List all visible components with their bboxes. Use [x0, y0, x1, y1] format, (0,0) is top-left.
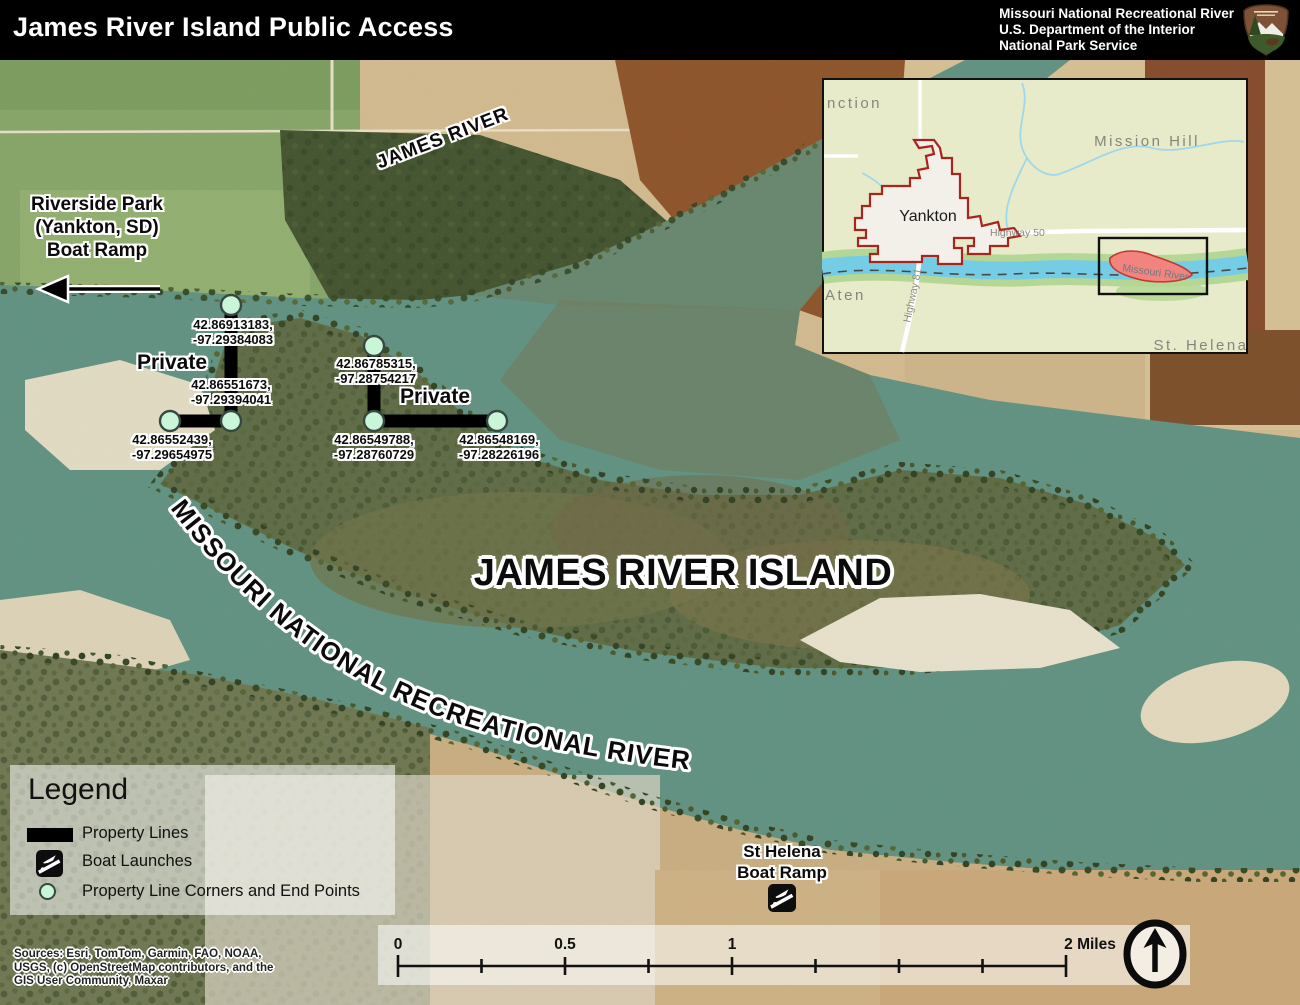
coordinate-label: 42.86552439, -97.29654975 [132, 433, 212, 463]
coordinate-label: 42.86549788, -97.28760729 [334, 433, 414, 463]
scale-label-05: 0.5 [554, 936, 576, 953]
scale-bar: 0 0.5 1 2 Miles [378, 925, 1190, 985]
inset-locator-map: nction Mission Hill Yankton Highway 50 H… [822, 78, 1248, 354]
riverside-park-line2: (Yankton, SD) [31, 216, 163, 239]
page-title: James River Island Public Access [13, 12, 454, 43]
inset-yankton-label: Yankton [899, 208, 957, 225]
riverside-park-label: Riverside Park (Yankton, SD) Boat Ramp [31, 193, 163, 263]
legend-item-boat-launches: Boat Launches [10, 849, 395, 877]
coordinate-label: 42.86785315, -97.28754217 [336, 357, 416, 387]
property-line-swatch [27, 828, 73, 842]
header-bar: James River Island Public Access Missour… [0, 0, 1300, 60]
boat-launch-icon [36, 850, 63, 877]
inset-aten-label: Aten [825, 287, 866, 304]
coordinate-label: 42.86548169, -97.28226196 [459, 433, 539, 463]
private-label-east: Private [400, 385, 470, 409]
inset-junction-label: nction [827, 95, 882, 112]
inset-highway50-label: Highway 50 [990, 227, 1045, 239]
inset-st-helena-label: St. Helena [1153, 337, 1248, 354]
agency-line-dept: U.S. Department of the Interior [999, 22, 1234, 38]
scale-label-1: 1 [728, 936, 737, 953]
map-document: MISSOURI NATIONAL RECREATIONAL RIVER Jam… [0, 0, 1300, 1005]
island-title-label: JAMES RIVER ISLAND [474, 552, 893, 595]
riverside-park-line1: Riverside Park [31, 193, 163, 216]
private-label-west: Private [137, 351, 207, 375]
scale-label-2mi: 2 Miles [1064, 936, 1116, 953]
scale-bar-panel: 0 0.5 1 2 Miles [378, 925, 1190, 985]
agency-line-nps: National Park Service [999, 38, 1234, 54]
riverside-park-line3: Boat Ramp [31, 239, 163, 262]
agency-line-park: Missouri National Recreational River [999, 6, 1234, 22]
property-corner-marker-swatch [39, 883, 56, 900]
legend-title: Legend [28, 773, 128, 807]
north-arrow [1119, 916, 1191, 990]
boat-launch-icon [768, 884, 796, 912]
legend-panel: Legend Property Lines Boat Launches Prop… [10, 765, 395, 915]
coordinate-label: 42.86913183, -97.29384083 [193, 318, 273, 348]
sources-attribution: Sources: Esri, TomTom, Garmin, FAO, NOAA… [14, 948, 273, 989]
inset-mission-hill-label: Mission Hill [1094, 133, 1200, 150]
agency-block: Missouri National Recreational River U.S… [999, 6, 1234, 55]
legend-item-property-lines: Property Lines [10, 821, 395, 849]
legend-item-corners: Property Line Corners and End Points [10, 879, 395, 907]
scale-label-0: 0 [394, 936, 403, 953]
coordinate-label: 42.86551673, -97.29394041 [191, 378, 271, 408]
nps-arrowhead-logo-icon [1242, 3, 1290, 57]
st-helena-boat-ramp-label: St Helena Boat Ramp [737, 841, 827, 884]
